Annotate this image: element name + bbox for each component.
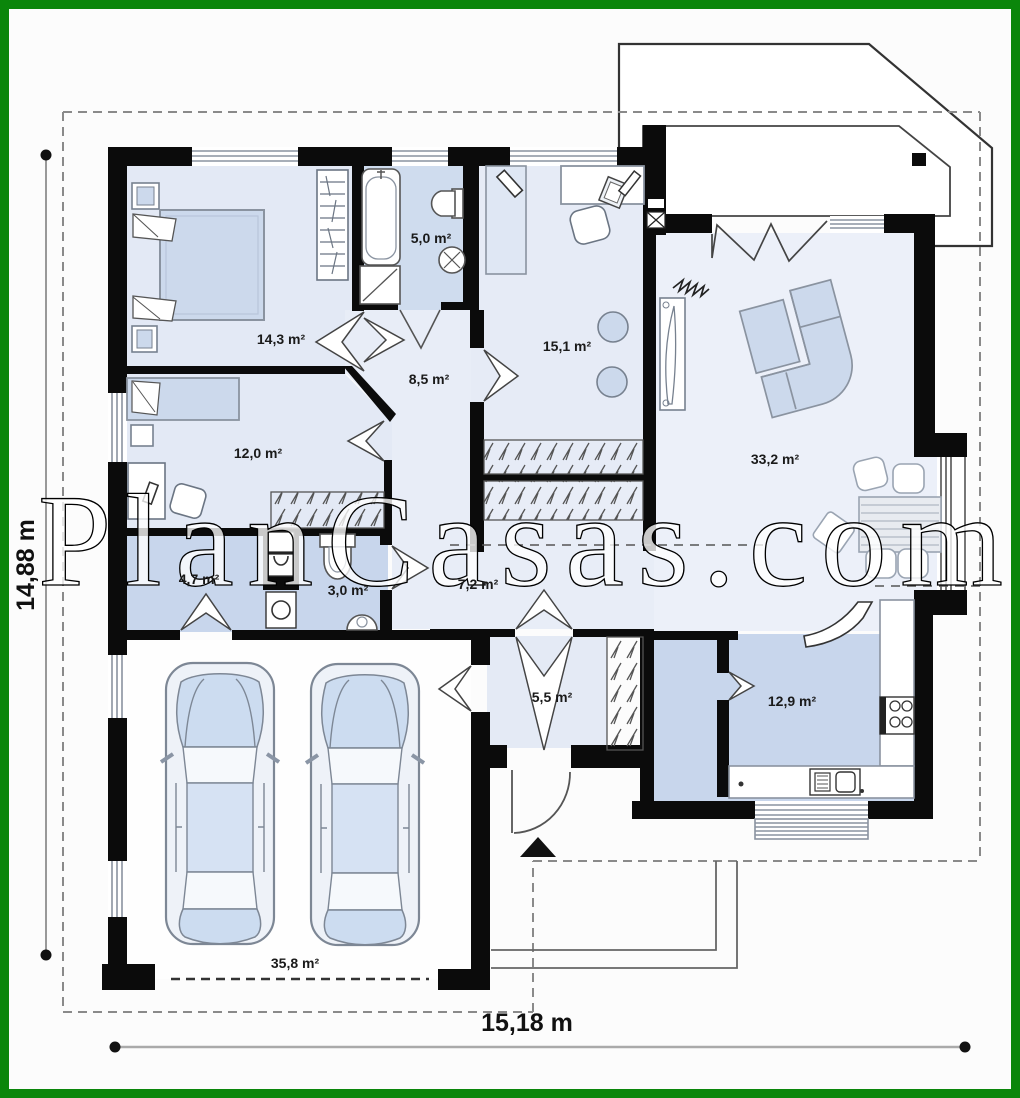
svg-text:5,5 m²: 5,5 m²	[532, 689, 573, 705]
svg-text:15,18 m: 15,18 m	[481, 1009, 573, 1037]
svg-text:4,7 m²: 4,7 m²	[179, 571, 220, 587]
svg-text:14,3 m²: 14,3 m²	[257, 331, 306, 347]
svg-text:35,8 m²: 35,8 m²	[271, 955, 320, 971]
svg-text:12,9 m²: 12,9 m²	[768, 693, 817, 709]
svg-text:12,0 m²: 12,0 m²	[234, 445, 283, 461]
svg-text:8,5 m²: 8,5 m²	[409, 371, 450, 387]
svg-text:5,0 m²: 5,0 m²	[411, 230, 452, 246]
svg-text:33,2 m²: 33,2 m²	[751, 451, 800, 467]
svg-text:PlanCasas.com: PlanCasas.com	[38, 467, 1003, 614]
svg-text:15,1 m²: 15,1 m²	[543, 338, 592, 354]
svg-text:7,2 m²: 7,2 m²	[458, 576, 499, 592]
svg-text:14,88 m: 14,88 m	[12, 519, 40, 611]
svg-text:3,0 m²: 3,0 m²	[328, 582, 369, 598]
